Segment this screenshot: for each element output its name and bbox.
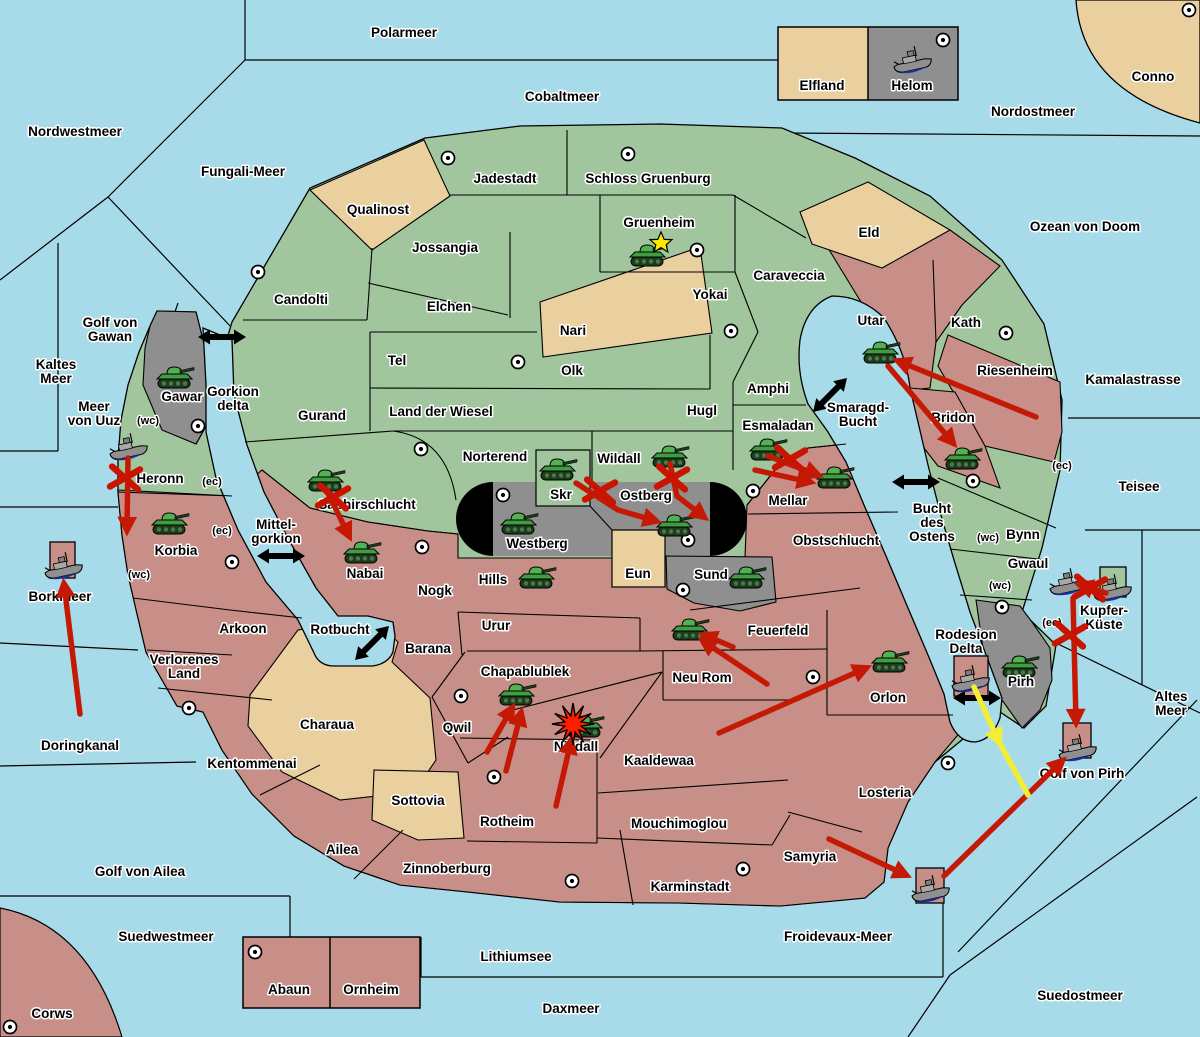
territory-label-text: Olk xyxy=(561,363,583,378)
territory-label-text: Skr xyxy=(550,487,573,502)
territory-label-text: Utar xyxy=(857,313,885,328)
sea-label-text: Ostens xyxy=(909,529,955,544)
territory-label: Nari xyxy=(560,323,586,338)
coast-tag-label: (wc) xyxy=(128,569,150,581)
territory-label: Hugl xyxy=(687,403,717,418)
sea-label-text: Kaltes xyxy=(36,357,77,372)
territory-label: Qwil xyxy=(443,720,472,735)
sea-label-text: Golf von xyxy=(83,315,138,330)
sea-label: Cobaltmeer xyxy=(525,89,600,104)
territory-label-text: Orlon xyxy=(870,690,906,705)
territory-label-text: Arkoon xyxy=(219,621,266,636)
city-dot-icon xyxy=(691,244,704,257)
territory-label: Mellar xyxy=(768,493,808,508)
sea-label-text: Polarmeer xyxy=(371,25,438,40)
territory-label: Esmaladan xyxy=(742,418,813,433)
sea-label-text: delta xyxy=(217,398,249,413)
city-dot-icon xyxy=(249,946,262,959)
territory-label: Kentommenai xyxy=(207,756,296,771)
coast-tag-label-text: (wc) xyxy=(977,532,999,544)
territory-label: Qualinost xyxy=(347,202,410,217)
coast-tag-label-text: (ec) xyxy=(202,476,222,488)
territory-label: Samyria xyxy=(784,849,837,864)
territory-label: Sottovia xyxy=(391,793,445,808)
territory-label: Corws xyxy=(31,1006,72,1021)
territory-label-text: Jadestadt xyxy=(473,171,537,186)
territory-label: Helom xyxy=(891,78,932,93)
sea-label-text: Mittel- xyxy=(256,517,296,532)
sea-label-text: Küste xyxy=(1085,617,1123,632)
territory-label: Bynn xyxy=(1006,527,1040,542)
territory-label: Olk xyxy=(561,363,583,378)
sea-label-text: Cobaltmeer xyxy=(525,89,600,104)
sea-label-text: gorkion xyxy=(251,531,301,546)
territory-label: Pirh xyxy=(1008,674,1034,689)
sea-label: Polarmeer xyxy=(371,25,438,40)
territory-label: Ornheim xyxy=(343,982,399,997)
strategy-game-map: PolarmeerNordwestmeerFungali-MeerCobaltm… xyxy=(0,0,1200,1037)
territory-label: Caraveccia xyxy=(753,268,825,283)
territory-label-text: Abaun xyxy=(268,982,310,997)
territory-label-text: Nabai xyxy=(347,566,384,581)
sea-label-text: Suedostmeer xyxy=(1037,988,1123,1003)
territory-label: Feuerfeld xyxy=(748,623,809,638)
coast-tag-label-text: (ec) xyxy=(212,525,232,537)
sea-label-text: Doringkanal xyxy=(41,738,119,753)
city-dot-icon xyxy=(497,489,510,502)
territory-label: Urur xyxy=(482,618,511,633)
sea-label: Doringkanal xyxy=(41,738,119,753)
city-dot-icon xyxy=(512,356,525,369)
sea-label-text: Gawan xyxy=(88,329,132,344)
territory-label-text: Kath xyxy=(951,315,981,330)
sea-label: AltesMeer xyxy=(1154,689,1187,718)
territory-label: Gurand xyxy=(298,408,346,423)
territory-label: Tel xyxy=(388,353,407,368)
territory-label: Jadestadt xyxy=(473,171,537,186)
sea-label-text: Kupfer- xyxy=(1080,603,1128,618)
territory-label-text: Ornheim xyxy=(343,982,399,997)
territory-label-text: Esmaladan xyxy=(742,418,813,433)
territory-label-text: Corws xyxy=(31,1006,72,1021)
attack-arrow xyxy=(1073,598,1076,722)
territory-label: Elchen xyxy=(427,299,471,314)
coast-tag-label: (ec) xyxy=(202,476,222,488)
territory-label-text: Land der Wiesel xyxy=(389,404,492,419)
territory-label: Nogk xyxy=(418,583,452,598)
territory-label-text: Nari xyxy=(560,323,586,338)
territory-label: Losteria xyxy=(859,785,912,800)
sea-label-text: Altes xyxy=(1154,689,1187,704)
territory-label-text: Eld xyxy=(858,225,879,240)
territory-label: Heronn xyxy=(136,471,183,486)
territory-label: Eld xyxy=(858,225,879,240)
territory-label-text: Obstschlucht xyxy=(793,533,880,548)
city-dot-icon xyxy=(183,702,196,715)
territory-label: Barana xyxy=(405,641,451,656)
territory-label-text: Nilldall xyxy=(554,739,598,754)
territory-label-text: Elfland xyxy=(799,78,844,93)
territory-label-text: Karminstadt xyxy=(651,879,730,894)
sea-label: Daxmeer xyxy=(542,1001,600,1016)
sea-label-text: Lithiumsee xyxy=(480,949,552,964)
territory-label-text: Hugl xyxy=(687,403,717,418)
city-dot-icon xyxy=(442,152,455,165)
sea-label: Ozean von Doom xyxy=(1030,219,1140,234)
coast-tag-label: (wc) xyxy=(989,580,1011,592)
territory-label-text: Schloss Gruenburg xyxy=(585,171,710,186)
sea-label-text: Meer xyxy=(40,371,72,386)
territory-label-text: Gurand xyxy=(298,408,346,423)
sea-label-text: Nordostmeer xyxy=(991,104,1076,119)
territory-label: Skr xyxy=(550,487,573,502)
territory-label: Abaun xyxy=(268,982,310,997)
coast-tag-label-text: (wc) xyxy=(137,415,159,427)
city-dot-icon xyxy=(622,148,635,161)
sea-label-text: Suedwestmeer xyxy=(118,929,214,944)
territory-label: Wildall xyxy=(597,451,640,466)
territory-label-text: Eun xyxy=(625,566,651,581)
sea-label: Fungali-Meer xyxy=(201,164,286,179)
sea-label: Mittel-gorkion xyxy=(251,517,301,546)
sea-label-text: Kamalastrasse xyxy=(1085,372,1181,387)
city-dot-icon xyxy=(226,556,239,569)
territory-label: Conno xyxy=(1132,69,1175,84)
coast-tag-label-text: (wc) xyxy=(128,569,150,581)
territory-label: Zinnoberburg xyxy=(403,861,491,876)
sea-label: Teisee xyxy=(1118,479,1160,494)
territory-label: Riesenheim xyxy=(977,363,1053,378)
territory-label-text: Sund xyxy=(694,567,728,582)
city-dot-icon xyxy=(967,475,980,488)
territory-label-text: Losteria xyxy=(859,785,912,800)
city-dot-icon xyxy=(455,690,468,703)
sea-label: Borkmeer xyxy=(28,589,92,604)
territory-label-text: Tel xyxy=(388,353,407,368)
sea-label-text: Delta xyxy=(949,641,983,656)
territory-label: Orlon xyxy=(870,690,906,705)
sea-label-text: Froidevaux-Meer xyxy=(784,929,893,944)
territory-label: Norterend xyxy=(463,449,528,464)
sea-label-text: Golf von Ailea xyxy=(95,864,186,879)
territory-label: Amphi xyxy=(747,381,789,396)
territory-label-text: Kaaldewaa xyxy=(624,753,694,768)
sea-label: Froidevaux-Meer xyxy=(784,929,893,944)
sea-label-text: Daxmeer xyxy=(542,1001,600,1016)
city-dot-icon xyxy=(1000,327,1013,340)
sea-label-text: Rodesion xyxy=(935,627,997,642)
map-canvas[interactable]: PolarmeerNordwestmeerFungali-MeerCobaltm… xyxy=(0,0,1200,1037)
sea-label-text: Ozean von Doom xyxy=(1030,219,1140,234)
territory-label-text: Conno xyxy=(1132,69,1175,84)
territory-label-text: Bynn xyxy=(1006,527,1040,542)
territory-label-text: Riesenheim xyxy=(977,363,1053,378)
territory-label: Gwaul xyxy=(1008,556,1049,571)
territory-label: Rotheim xyxy=(480,814,534,829)
territory-label: Westberg xyxy=(506,536,567,551)
territory-label: Utar xyxy=(857,313,885,328)
city-dot-icon xyxy=(725,325,738,338)
territory-label: Charaua xyxy=(300,717,355,732)
territory-label-text: Barana xyxy=(405,641,451,656)
territory-label-text: Neu Rom xyxy=(672,670,731,685)
sea-label-text: Nordwestmeer xyxy=(28,124,123,139)
territory-label: Neu Rom xyxy=(672,670,731,685)
territory-label: Sund xyxy=(694,567,728,582)
territory-label-text: Ostberg xyxy=(620,488,672,503)
territory-label-text: Westberg xyxy=(506,536,567,551)
territory-label: Obstschlucht xyxy=(793,533,880,548)
territory-label-text: Sottovia xyxy=(391,793,445,808)
sea-label-text: Bucht xyxy=(839,414,878,429)
sea-label-text: Meer xyxy=(78,399,110,414)
coast-tag-label: (ec) xyxy=(1052,460,1072,472)
city-dot-icon xyxy=(942,757,955,770)
territory-label-text: Qwil xyxy=(443,720,472,735)
city-dot-icon xyxy=(252,266,265,279)
sea-label: Lithiumsee xyxy=(480,949,552,964)
sea-label: KaltesMeer xyxy=(36,357,77,386)
territory-label: Elfland xyxy=(799,78,844,93)
territory-label-text: Amphi xyxy=(747,381,789,396)
sea-label: Suedostmeer xyxy=(1037,988,1123,1003)
territory-label: Candolti xyxy=(274,292,328,307)
territory-label: Gruenheim xyxy=(623,215,694,230)
coast-tag-label-text: (ec) xyxy=(1052,460,1072,472)
territory-label-text: Norterend xyxy=(463,449,528,464)
sea-label: Suedwestmeer xyxy=(118,929,214,944)
territory-label-text: Pirh xyxy=(1008,674,1034,689)
territory-label-text: Feuerfeld xyxy=(748,623,809,638)
city-dot-icon xyxy=(1183,4,1196,17)
sea-label-text: Smaragd- xyxy=(827,400,889,415)
sea-label: Nordwestmeer xyxy=(28,124,123,139)
sea-label-text: Gorkion xyxy=(207,384,259,399)
coast-tag-label-text: (wc) xyxy=(989,580,1011,592)
territory-label-text: Mouchimoglou xyxy=(631,816,727,831)
territory-label-text: Yokai xyxy=(692,287,727,302)
territory-label-text: Nogk xyxy=(418,583,452,598)
sea-label: Rotbucht xyxy=(310,622,370,637)
sea-label-text: Rotbucht xyxy=(310,622,370,637)
territory-label: Nabai xyxy=(347,566,384,581)
territory-label-text: Verlorenes xyxy=(149,652,218,667)
territory-label-text: Gwaul xyxy=(1008,556,1049,571)
city-dot-icon xyxy=(996,601,1009,614)
sea-label-text: des xyxy=(920,515,943,530)
city-dot-icon xyxy=(747,485,760,498)
territory-label-text: Wildall xyxy=(597,451,640,466)
territory-label-text: Urur xyxy=(482,618,511,633)
territory-label-text: Zinnoberburg xyxy=(403,861,491,876)
sea-label-text: von Uuz xyxy=(68,413,121,428)
city-dot-icon xyxy=(807,671,820,684)
sea-label-text: Teisee xyxy=(1118,479,1160,494)
territory-label-text: Korbia xyxy=(155,543,198,558)
territory-label-text: Caraveccia xyxy=(753,268,825,283)
city-dot-icon xyxy=(677,584,690,597)
territory-label: Mouchimoglou xyxy=(631,816,727,831)
territory-label-text: Candolti xyxy=(274,292,328,307)
territory-label: Eun xyxy=(625,566,651,581)
attack-arrow xyxy=(127,458,128,530)
sea-label-text: Fungali-Meer xyxy=(201,164,286,179)
territory-label-text: Jossangia xyxy=(412,240,479,255)
territory-label-text: Chapablublek xyxy=(481,664,570,679)
territory-label: Chapablublek xyxy=(481,664,570,679)
sea-label: Kamalastrasse xyxy=(1085,372,1181,387)
city-dot-icon xyxy=(192,420,205,433)
territory-label-text: Hills xyxy=(479,572,508,587)
territory-label: Hills xyxy=(479,572,508,587)
territory-label-text: Qualinost xyxy=(347,202,410,217)
territory-label-text: Elchen xyxy=(427,299,471,314)
city-dot-icon xyxy=(4,1021,17,1034)
territory-label-text: Gruenheim xyxy=(623,215,694,230)
city-dot-icon xyxy=(416,541,429,554)
sea-label-text: Bucht xyxy=(913,501,952,516)
inset-box[interactable] xyxy=(330,937,420,1008)
territory-label: Gawar xyxy=(161,389,203,404)
territory-label-text: Kentommenai xyxy=(207,756,296,771)
territory-label: Jossangia xyxy=(412,240,479,255)
territory-label: Land der Wiesel xyxy=(389,404,492,419)
coast-tag-label: (ec) xyxy=(212,525,232,537)
territory-label-text: Heronn xyxy=(136,471,183,486)
territory-label: Schloss Gruenburg xyxy=(585,171,710,186)
territory-label-text: Samyria xyxy=(784,849,837,864)
sea-label-text: Meer xyxy=(1155,703,1187,718)
sea-label: Golf von Ailea xyxy=(95,864,186,879)
territory-label: Ailea xyxy=(326,842,359,857)
city-dot-icon xyxy=(566,875,579,888)
territory-label: Arkoon xyxy=(219,621,266,636)
city-dot-icon xyxy=(415,443,428,456)
territory-label-text: Gawar xyxy=(161,389,203,404)
territory-label: Kath xyxy=(951,315,981,330)
territory-label-text: Helom xyxy=(891,78,932,93)
territory-label-text: Mellar xyxy=(768,493,808,508)
territory-label-text: Land xyxy=(168,666,200,681)
territory-label: Kaaldewaa xyxy=(624,753,694,768)
territory-label-text: Ailea xyxy=(326,842,359,857)
city-dot-icon xyxy=(937,34,950,47)
coast-tag-label: (wc) xyxy=(137,415,159,427)
territory-label: Karminstadt xyxy=(651,879,730,894)
sea-label: Nordostmeer xyxy=(991,104,1076,119)
territory-label: Ostberg xyxy=(620,488,672,503)
territory-label: Yokai xyxy=(692,287,727,302)
territory-label-text: Charaua xyxy=(300,717,355,732)
territory-label-text: Rotheim xyxy=(480,814,534,829)
city-dot-icon xyxy=(488,771,501,784)
sea-label: Golf vonGawan xyxy=(83,315,138,344)
coast-tag-label: (wc) xyxy=(977,532,999,544)
territory-label: Nilldall xyxy=(554,739,598,754)
territory-label: Korbia xyxy=(155,543,198,558)
city-dot-icon xyxy=(737,863,750,876)
sea-label-text: Borkmeer xyxy=(28,589,92,604)
